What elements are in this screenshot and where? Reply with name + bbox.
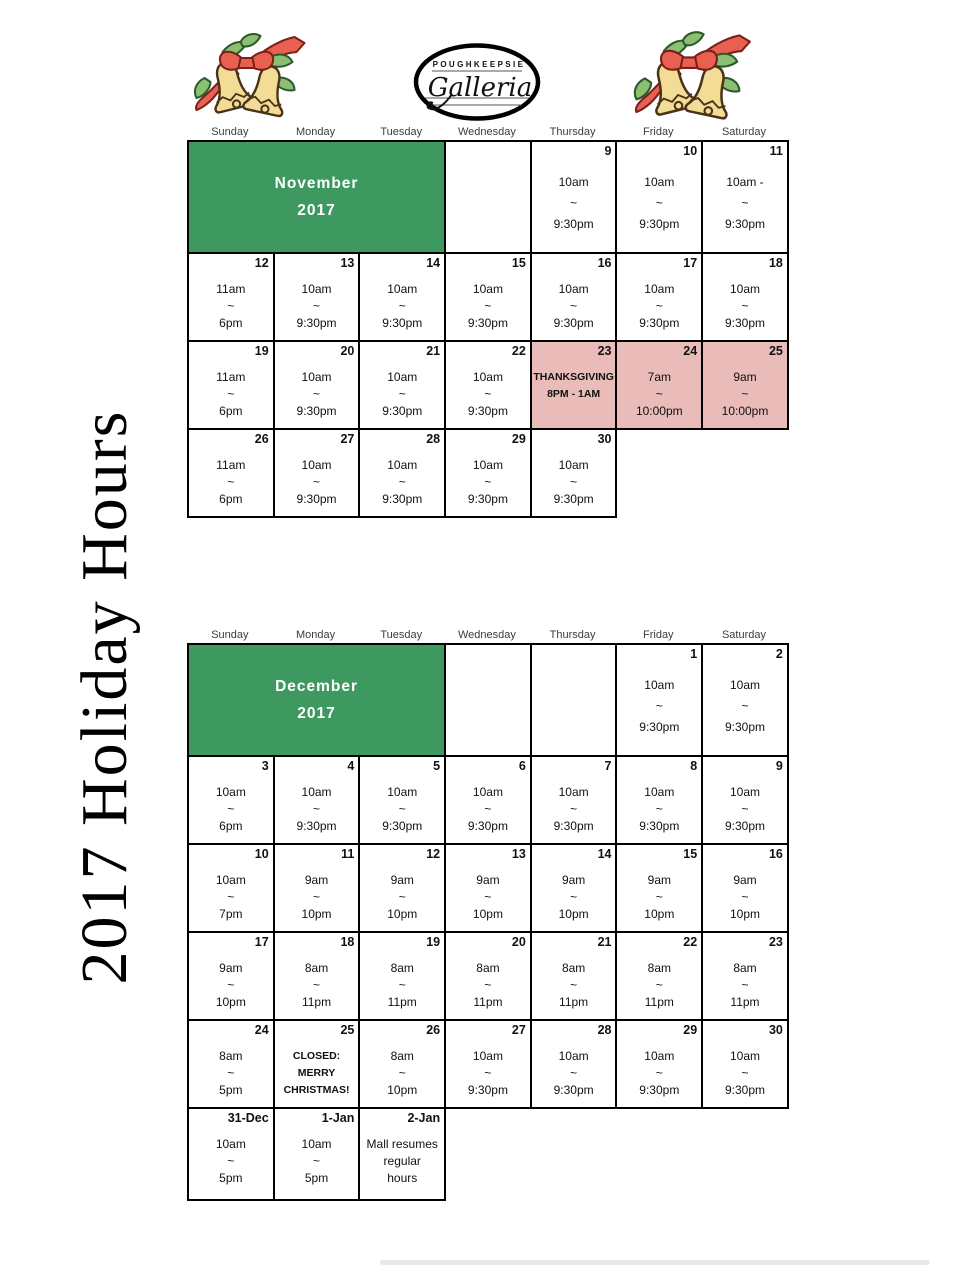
date-number: 3 [189,757,273,773]
day-cell: 248am~5pm [188,1020,274,1108]
hours-line: CLOSED: [275,1048,359,1065]
month-title-line: 2017 [189,700,444,727]
month-title: November2017 [189,170,444,224]
hours-line: 9:30pm [275,818,359,835]
weekday-label: Sunday [187,126,273,140]
empty-space [445,1108,531,1200]
hours-text: 10am~9:30pm [532,784,616,835]
weekday-label: Saturday [701,126,787,140]
day-cell: 1510am~9:30pm [445,253,531,341]
bells-clipart-left [180,30,315,130]
hours-line: ~ [532,801,616,818]
hours-text: CLOSED:MERRYCHRISTMAS! [275,1048,359,1099]
galleria-logo: POUGHKEEPSIE Galleria [412,42,542,122]
day-cell: 2710am~9:30pm [274,429,360,517]
date-number: 20 [275,342,359,358]
date-number: 13 [275,254,359,270]
hours-line: 9am [360,872,444,889]
date-number: 5 [360,757,444,773]
hours-line: 10am [703,1048,787,1065]
day-cell: 1310am~9:30pm [274,253,360,341]
hours-line: 9:30pm [446,1082,530,1099]
calendar-row: 310am~6pm410am~9:30pm510am~9:30pm610am~9… [188,756,788,844]
day-cell: 210am~9:30pm [702,644,788,756]
hours-line: 9:30pm [617,1082,701,1099]
hours-text: 10am~7pm [189,872,273,923]
hours-line: 8PM - 1AM [532,386,616,403]
day-cell: 188am~11pm [274,932,360,1020]
hours-line: 10am [617,784,701,801]
day-cell: 218am~11pm [531,932,617,1020]
hours-line: 11pm [275,994,359,1011]
hours-line: ~ [703,1065,787,1082]
day-cell: 3010am~9:30pm [702,1020,788,1108]
date-number: 16 [703,845,787,861]
calendar-row: 1010am~7pm119am~10pm129am~10pm139am~10pm… [188,844,788,932]
date-number: 22 [617,933,701,949]
calendar-november: SundayMondayTuesdayWednesdayThursdayFrid… [187,126,789,518]
hours-text: 10am~6pm [189,784,273,835]
hours-line: ~ [446,1065,530,1082]
hours-text: 10am~9:30pm [532,457,616,508]
hours-text: 10am~9:30pm [275,369,359,420]
hours-line: 9:30pm [617,214,701,235]
hours-line: ~ [360,1065,444,1082]
hours-text: 10am~9:30pm [703,281,787,332]
date-number: 27 [446,1021,530,1037]
hours-line: MERRY [275,1065,359,1082]
hours-line: 11pm [703,994,787,1011]
day-cell: 2010am~9:30pm [274,341,360,429]
date-number: 9 [532,142,616,158]
hours-line: ~ [617,298,701,315]
hours-line: ~ [189,889,273,906]
weekday-label: Sunday [187,629,273,643]
hours-text: 10am~9:30pm [703,784,787,835]
date-number: 28 [532,1021,616,1037]
weekday-label: Friday [615,126,701,140]
hours-line: 10pm [360,1082,444,1099]
empty-space [702,429,788,517]
hours-line: ~ [446,801,530,818]
day-cell: 1710am~9:30pm [616,253,702,341]
empty-space [616,1108,702,1200]
date-number: 28 [360,430,444,446]
hours-line: 10am [275,457,359,474]
month-title-line: November [189,170,444,197]
hours-text: 8am~11pm [446,960,530,1011]
hours-line: ~ [703,193,787,214]
hours-line: ~ [275,386,359,403]
date-number: 21 [532,933,616,949]
hours-text: 11am~6pm [189,281,273,332]
hours-line: ~ [617,696,701,717]
day-cell: 129am~10pm [359,844,445,932]
hours-line: ~ [360,386,444,403]
hours-line: 6pm [189,818,273,835]
hours-line: 9:30pm [446,403,530,420]
hours-line: 10am [446,1048,530,1065]
hours-line: ~ [532,298,616,315]
hours-text: 10am~9:30pm [532,1048,616,1099]
date-number: 25 [275,1021,359,1037]
date-number: 10 [617,142,701,158]
hours-text: 10am~9:30pm [446,457,530,508]
hours-text: 9am~10pm [275,872,359,923]
hours-line: 8am [446,960,530,977]
day-cell: 208am~11pm [445,932,531,1020]
hours-line: 10am [532,172,616,193]
hours-line: 8am [360,960,444,977]
hours-line: 9:30pm [360,315,444,332]
day-cell: 1-Jan10am~5pm [274,1108,360,1200]
date-number: 20 [446,933,530,949]
weekday-label: Thursday [530,629,616,643]
date-number: 11 [703,142,787,158]
date-number: 18 [275,933,359,949]
day-cell: 238am~11pm [702,932,788,1020]
date-number: 10 [189,845,273,861]
hours-text: 10am~9:30pm [275,281,359,332]
hours-text: 9am~10:00pm [703,369,787,420]
day-cell: 3010am~9:30pm [531,429,617,517]
calendar-row: November2017910am~9:30pm1010am~9:30pm111… [188,141,788,253]
day-cell: 1010am~9:30pm [616,141,702,253]
hours-text: 10am~9:30pm [446,784,530,835]
date-number: 12 [189,254,273,270]
hours-line: 10am [189,784,273,801]
empty-space [616,429,702,517]
date-number: 12 [360,845,444,861]
hours-line: 10am [617,675,701,696]
date-number: 6 [446,757,530,773]
day-cell: 169am~10pm [702,844,788,932]
hours-text: 10am~9:30pm [446,1048,530,1099]
hours-line: 10am [189,872,273,889]
weekday-label: Thursday [530,126,616,140]
hours-line: 10pm [360,906,444,923]
weekday-label: Tuesday [358,126,444,140]
day-cell: 247am~10:00pm [616,341,702,429]
hours-text: 10am -~9:30pm [703,172,787,235]
blank-day-cell [531,644,617,756]
day-cell: 910am~9:30pm [702,756,788,844]
hours-line: 9:30pm [703,818,787,835]
hours-text: 10am~9:30pm [360,457,444,508]
date-number: 9 [703,757,787,773]
date-number: 22 [446,342,530,358]
hours-text: 9am~10pm [532,872,616,923]
date-number: 14 [532,845,616,861]
month-title-cell: December2017 [188,644,445,756]
date-number: 2-Jan [360,1109,444,1125]
date-number: 29 [617,1021,701,1037]
hours-line: 10am [617,281,701,298]
hours-line: 9:30pm [532,818,616,835]
date-number: 26 [360,1021,444,1037]
hours-line: 8am [532,960,616,977]
calendar-row: 179am~10pm188am~11pm198am~11pm208am~11pm… [188,932,788,1020]
day-cell: 1211am~6pm [188,253,274,341]
hours-line: 10am [360,281,444,298]
hours-line: ~ [275,1153,359,1170]
hours-line: 9:30pm [703,214,787,235]
hours-line: 9:30pm [275,315,359,332]
hours-text: 10am~9:30pm [532,281,616,332]
date-number: 2 [703,645,787,661]
hours-line: 6pm [189,315,273,332]
date-number: 8 [617,757,701,773]
hours-line: hours [360,1170,444,1187]
hours-line: ~ [703,298,787,315]
day-cell: 2611am~6pm [188,429,274,517]
hours-line: 10pm [703,906,787,923]
hours-line: 10am [617,1048,701,1065]
date-number: 31-Dec [189,1109,273,1125]
hours-line: 9:30pm [360,818,444,835]
weekday-label: Monday [273,629,359,643]
date-number: 25 [703,342,787,358]
hours-text: 9am~10pm [617,872,701,923]
hours-line: ~ [703,386,787,403]
blank-day-cell [445,644,531,756]
hours-line: ~ [189,1065,273,1082]
hours-line: 11am [189,369,273,386]
hours-line: ~ [703,977,787,994]
hours-line: ~ [189,801,273,818]
hours-line: 10am [275,369,359,386]
hours-line: ~ [360,889,444,906]
weekday-label: Wednesday [444,629,530,643]
bells-clipart-right [620,28,760,133]
hours-line: 7am [617,369,701,386]
weekday-label: Saturday [701,629,787,643]
hours-line: ~ [189,386,273,403]
hours-text: 10am~9:30pm [617,675,701,738]
hours-line: 10am [532,281,616,298]
hours-line: 9:30pm [703,717,787,738]
hours-line: ~ [360,474,444,491]
day-cell: 2810am~9:30pm [359,429,445,517]
hours-line: 8am [189,1048,273,1065]
day-cell: 2110am~9:30pm [359,341,445,429]
hours-text: 8am~11pm [275,960,359,1011]
hours-line: 11am [189,457,273,474]
hours-line: 8am [703,960,787,977]
hours-line: ~ [703,801,787,818]
empty-space [702,1108,788,1200]
hours-line: ~ [275,474,359,491]
hours-line: ~ [446,386,530,403]
day-cell: 110am~9:30pm [616,644,702,756]
hours-line: 10am [275,784,359,801]
hours-line: 10am - [703,172,787,193]
hours-line: 5pm [189,1170,273,1187]
hours-line: 10am [617,172,701,193]
date-number: 7 [532,757,616,773]
date-number: 27 [275,430,359,446]
hours-line: ~ [275,977,359,994]
date-number: 16 [532,254,616,270]
hours-line: 9am [189,960,273,977]
hours-text: 10am~9:30pm [617,784,701,835]
hours-line: ~ [189,1153,273,1170]
hours-line: 11pm [617,994,701,1011]
hours-line: 10pm [446,906,530,923]
hours-line: 10am [360,457,444,474]
hours-line: 9am [532,872,616,889]
hours-text: 8am~11pm [703,960,787,1011]
hours-line: 10am [446,369,530,386]
hours-line: 9:30pm [617,818,701,835]
date-number: 30 [703,1021,787,1037]
hours-line: ~ [275,801,359,818]
hours-text: THANKSGIVING8PM - 1AM [532,369,616,403]
hours-line: 10am [360,784,444,801]
calendar-row: 1211am~6pm1310am~9:30pm1410am~9:30pm1510… [188,253,788,341]
weekday-label: Tuesday [358,629,444,643]
date-number: 23 [532,342,616,358]
hours-text: 10am~5pm [189,1136,273,1187]
hours-line: 10am [446,281,530,298]
date-number: 29 [446,430,530,446]
day-cell: 119am~10pm [274,844,360,932]
hours-line: ~ [532,193,616,214]
day-cell: 2710am~9:30pm [445,1020,531,1108]
day-cell: 179am~10pm [188,932,274,1020]
hours-line: 6pm [189,491,273,508]
blank-day-cell [445,141,531,253]
date-number: 4 [275,757,359,773]
hours-text: 10am~9:30pm [360,281,444,332]
date-number: 15 [617,845,701,861]
hours-line: ~ [617,801,701,818]
month-title-cell: November2017 [188,141,445,253]
hours-line: 10am [703,675,787,696]
hours-line: 10am [360,369,444,386]
hours-line: 9:30pm [532,491,616,508]
hours-text: 10am~9:30pm [360,784,444,835]
date-number: 21 [360,342,444,358]
hours-line: ~ [360,977,444,994]
day-cell: 510am~9:30pm [359,756,445,844]
hours-text: 10am~9:30pm [617,172,701,235]
hours-line: ~ [703,889,787,906]
day-cell: 139am~10pm [445,844,531,932]
hours-line: 5pm [275,1170,359,1187]
hours-line: 10pm [275,906,359,923]
day-cell: 159am~10pm [616,844,702,932]
hours-line: ~ [532,1065,616,1082]
hours-line: 10am [532,1048,616,1065]
hours-text: 10am~9:30pm [532,172,616,235]
date-number: 11 [275,845,359,861]
hours-line: 9:30pm [446,818,530,835]
day-cell: 810am~9:30pm [616,756,702,844]
hours-line: ~ [189,977,273,994]
day-cell: 410am~9:30pm [274,756,360,844]
day-cell: 1410am~9:30pm [359,253,445,341]
hours-line: 9:30pm [532,214,616,235]
hours-line: ~ [275,298,359,315]
hours-text: 10am~9:30pm [275,457,359,508]
hours-line: ~ [446,298,530,315]
calendar-row: 1911am~6pm2010am~9:30pm2110am~9:30pm2210… [188,341,788,429]
day-cell: 710am~9:30pm [531,756,617,844]
hours-line: 9am [446,872,530,889]
hours-line: Mall resumes [360,1136,444,1153]
weekday-label: Wednesday [444,126,530,140]
hours-line: 10am [446,784,530,801]
date-number: 1-Jan [275,1109,359,1125]
day-cell: 910am~9:30pm [531,141,617,253]
day-cell: 259am~10:00pm [702,341,788,429]
hours-line: 7pm [189,906,273,923]
hours-line: ~ [189,298,273,315]
logo-galleria-text: Galleria [428,73,533,103]
hours-text: 8am~10pm [360,1048,444,1099]
calendar-grid: December2017110am~9:30pm210am~9:30pm310a… [187,643,789,1201]
hours-line: 10pm [617,906,701,923]
date-number: 24 [617,342,701,358]
page-title: 2017 Holiday Hours [67,367,167,1027]
day-cell: 31-Dec10am~5pm [188,1108,274,1200]
hours-line: 8am [360,1048,444,1065]
hours-line: 11pm [360,994,444,1011]
hours-text: 9am~10pm [360,872,444,923]
hours-line: 9:30pm [446,491,530,508]
day-cell: 149am~10pm [531,844,617,932]
date-number: 18 [703,254,787,270]
hours-text: 10am~9:30pm [617,1048,701,1099]
empty-space [531,1108,617,1200]
hours-line: 9am [703,369,787,386]
calendar-row: 2611am~6pm2710am~9:30pm2810am~9:30pm2910… [188,429,788,517]
hours-text: 10am~9:30pm [703,1048,787,1099]
hours-line: 10am [532,457,616,474]
calendar-december: SundayMondayTuesdayWednesdayThursdayFrid… [187,629,789,1201]
hours-text: 9am~10pm [189,960,273,1011]
hours-line: 9am [703,872,787,889]
day-cell: 228am~11pm [616,932,702,1020]
hours-line: 10am [703,281,787,298]
hours-line: 10am [532,784,616,801]
hours-line: 10am [275,281,359,298]
hours-text: 10am~9:30pm [446,281,530,332]
hours-line: 9:30pm [360,403,444,420]
hours-line: ~ [360,801,444,818]
date-number: 17 [189,933,273,949]
hours-line: 9:30pm [617,717,701,738]
hours-line: 5pm [189,1082,273,1099]
date-number: 15 [446,254,530,270]
hours-line: 11am [189,281,273,298]
day-cell: 23THANKSGIVING8PM - 1AM [531,341,617,429]
hours-line: 8am [617,960,701,977]
hours-line: 9:30pm [446,315,530,332]
hours-line: ~ [532,977,616,994]
hours-line: 10am [189,1136,273,1153]
hours-text: Mall resumesregularhours [360,1136,444,1187]
day-cell: 2810am~9:30pm [531,1020,617,1108]
hours-line: THANKSGIVING [532,369,616,386]
hours-line: ~ [617,977,701,994]
day-cell: 1911am~6pm [188,341,274,429]
hours-line: 9:30pm [703,315,787,332]
hours-line: 10am [275,1136,359,1153]
date-number: 14 [360,254,444,270]
hours-line: ~ [617,1065,701,1082]
